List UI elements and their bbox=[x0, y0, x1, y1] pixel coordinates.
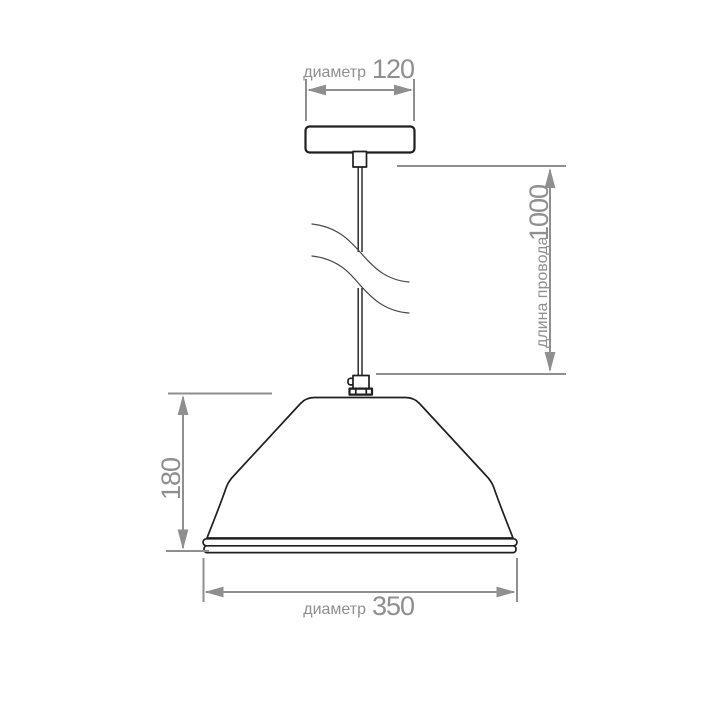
canopy-diameter-value: 120 bbox=[372, 54, 414, 84]
socket-housing bbox=[353, 376, 369, 390]
shade-diameter-label: диаметр bbox=[303, 601, 366, 618]
shade-height-value: 180 bbox=[156, 458, 186, 500]
lamp-shade bbox=[203, 398, 517, 553]
arrowhead-left-icon bbox=[205, 587, 224, 598]
dimension-cord-length: 1000 длина провода bbox=[376, 166, 566, 374]
break-line-lower bbox=[312, 256, 409, 313]
arrowhead-down-icon bbox=[178, 530, 189, 550]
arrowhead-up-icon bbox=[178, 395, 189, 415]
ceiling-canopy bbox=[306, 127, 415, 153]
shade-diameter-value: 350 bbox=[372, 591, 414, 621]
drawing-canvas: диаметр 120 1000 длина провода bbox=[0, 0, 720, 720]
cord-length-value: 1000 bbox=[524, 185, 554, 241]
canopy-diameter-label: диаметр bbox=[303, 64, 366, 81]
dimension-canopy-diameter: диаметр 120 bbox=[303, 54, 414, 121]
shade-rim-lower-band bbox=[204, 546, 516, 553]
cord-grip-connector bbox=[353, 152, 367, 168]
arrowhead-right-icon bbox=[394, 85, 413, 96]
lamp-canopy-and-cord bbox=[306, 127, 415, 377]
break-line-upper bbox=[312, 224, 409, 282]
arrowhead-down-icon bbox=[545, 352, 556, 372]
pendant-lamp-dimension-drawing: диаметр 120 1000 длина провода bbox=[0, 0, 720, 720]
cord-length-label: длина провода bbox=[534, 237, 551, 348]
arrowhead-right-icon bbox=[497, 587, 516, 598]
fitting-nut-flange bbox=[350, 389, 373, 395]
lamp-socket-fitting bbox=[348, 376, 372, 395]
dimension-shade-diameter: диаметр 350 bbox=[204, 558, 518, 621]
shade-body bbox=[207, 398, 513, 539]
shade-rim-upper-band bbox=[203, 539, 517, 546]
arrowhead-left-icon bbox=[307, 85, 326, 96]
